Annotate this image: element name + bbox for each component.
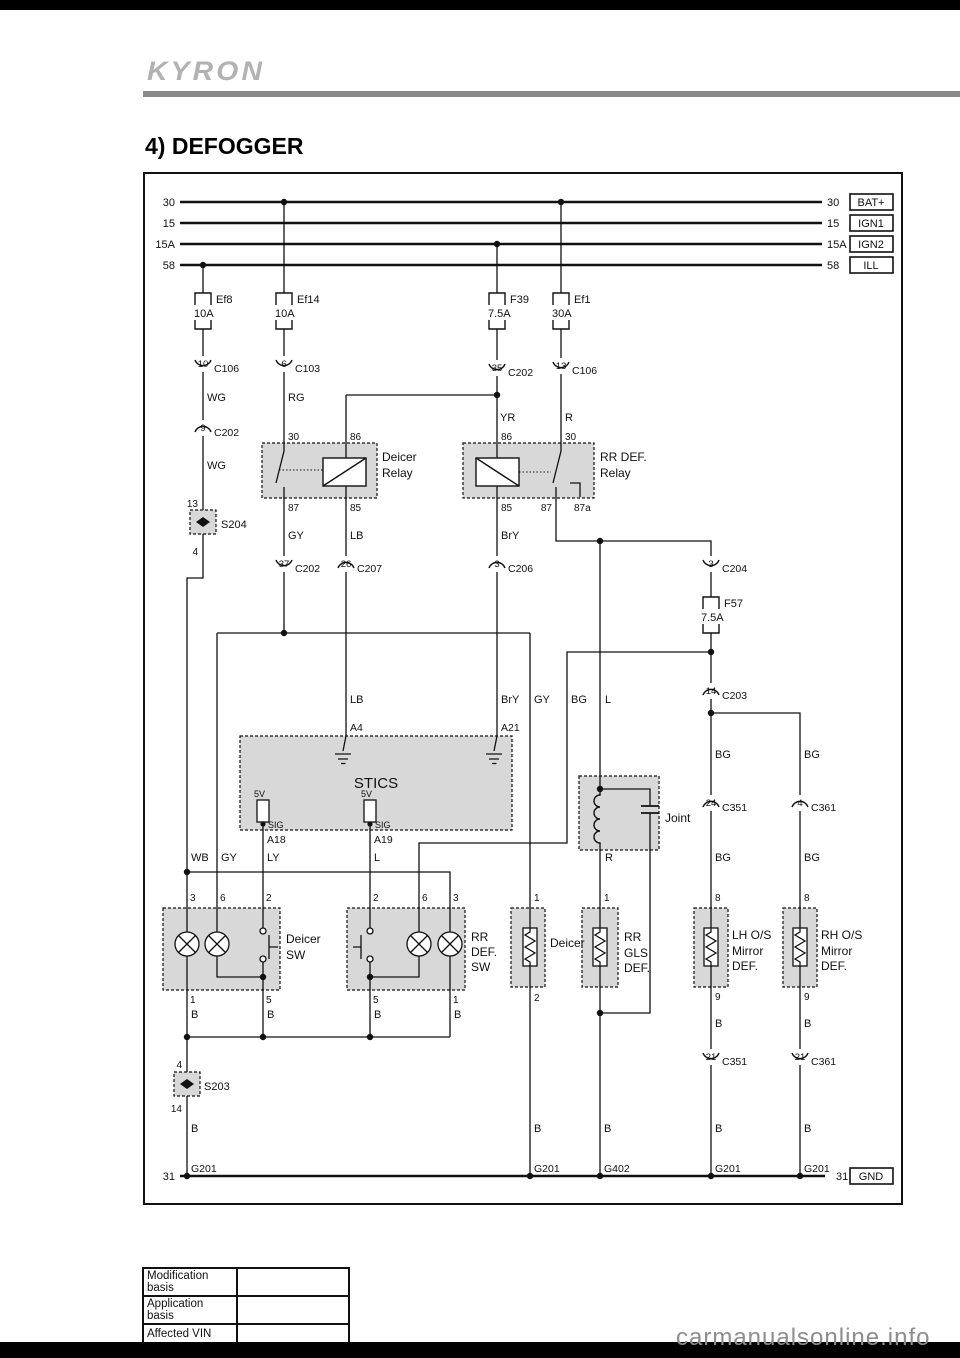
- splice-s203-pin14: 14: [171, 1104, 183, 1115]
- relay-deicer-pin30: 30: [288, 432, 300, 443]
- wire-wg-2: WG: [207, 460, 226, 472]
- wire-wg-1: WG: [207, 392, 226, 404]
- wire-bg-1: BG: [571, 694, 587, 706]
- deicer-el-pin1: 1: [534, 893, 540, 904]
- terminal-gnd: GND: [859, 1171, 884, 1183]
- wire-b-sw1: B: [191, 1009, 198, 1021]
- joint-label: Joint: [665, 811, 691, 825]
- deicersw-pin2: 2: [266, 893, 272, 904]
- bus-58-right: 58: [827, 260, 839, 272]
- conn-c203-pin14: 14: [706, 686, 717, 697]
- deicer-relay-feed-wire: [217, 202, 530, 1176]
- rhmirror-label1: RH O/S: [821, 928, 862, 942]
- splice-s204-pin13: 13: [187, 499, 199, 510]
- relay-rrdef-pin85: 85: [501, 503, 513, 514]
- conn-c106-pin10: 10: [198, 359, 209, 370]
- fuse-ef1-name: Ef1: [574, 294, 591, 306]
- wire-wb: WB: [191, 852, 209, 864]
- rrdefsw-label1: RR: [471, 930, 489, 944]
- wire-l-1: L: [605, 694, 611, 706]
- wire-r-joint: R: [605, 852, 613, 864]
- conn-c361-pin21: 21: [795, 1052, 806, 1063]
- wire-b-rh-1: B: [804, 1018, 811, 1030]
- stics-pin-a4: A4: [350, 722, 363, 734]
- ground-g201-2: G201: [534, 1163, 560, 1175]
- deicersw-pin1: 1: [190, 995, 196, 1006]
- fuse-ef14-amp: 10A: [275, 308, 295, 320]
- deicer-el-label: Deicer: [550, 936, 585, 950]
- conn-c206-pin3: 3: [494, 559, 499, 570]
- bus-30-right: 30: [827, 197, 839, 209]
- wire-gy-3: GY: [221, 852, 238, 864]
- conn-c207-name: C207: [357, 563, 382, 575]
- splice-s203-label: S203: [204, 1081, 230, 1093]
- wire-bg-lh-1: BG: [715, 749, 731, 761]
- table-row: Affected VIN: [143, 1324, 349, 1344]
- terminal-ign2: IGN2: [858, 239, 884, 251]
- conn-c202-pin37: 37: [279, 559, 290, 570]
- relay-rrdef-label2: Relay: [600, 466, 631, 480]
- wire-b-gls: B: [604, 1123, 611, 1135]
- rhmirror-label2: Mirror: [821, 944, 852, 958]
- deicersw-label2: SW: [286, 948, 306, 962]
- conn-c351-pin21: 21: [706, 1052, 717, 1063]
- lhmirror-label3: DEF.: [732, 959, 758, 973]
- ground-g201-3: G201: [715, 1163, 741, 1175]
- page-title: 4) DEFOGGER: [145, 133, 303, 160]
- wire-gy-2: GY: [534, 694, 551, 706]
- conn-c206-name: C206: [508, 563, 533, 575]
- conn-c202-pin35: 35: [492, 363, 503, 374]
- wire-b-left: B: [191, 1123, 198, 1135]
- conn-c106b-name: C106: [572, 365, 597, 377]
- relay-rrdef-pin87a: 87a: [574, 503, 591, 514]
- fuse-f39-amp: 7.5A: [488, 308, 511, 320]
- bus-30-left: 30: [163, 197, 175, 209]
- splice-s203-pin4: 4: [176, 1060, 182, 1071]
- bus-31-right: 31: [836, 1171, 848, 1183]
- conn-c203-name: C203: [722, 690, 747, 702]
- wire-b-sw3: B: [374, 1009, 381, 1021]
- lhmirror-label1: LH O/S: [732, 928, 771, 942]
- diagram-border: [144, 173, 902, 1204]
- wire-rg: RG: [288, 392, 305, 404]
- affected-vin-value: [237, 1324, 349, 1344]
- rrgls-label2: GLS: [624, 946, 648, 960]
- wire-l-2: L: [374, 852, 380, 864]
- ground-g201-1: G201: [191, 1163, 217, 1175]
- fuse-f39-name: F39: [510, 294, 529, 306]
- relay-deicer-pin87: 87: [288, 503, 300, 514]
- rrdefsw-pin1: 1: [453, 995, 459, 1006]
- conn-c106-name: C106: [214, 363, 239, 375]
- rrdefsw-pin2: 2: [373, 893, 379, 904]
- conn-c361-name-low: C361: [811, 1056, 836, 1068]
- conn-c202-name-top: C202: [508, 367, 533, 379]
- terminal-bat: BAT+: [857, 197, 884, 209]
- application-basis-label: Application basis: [143, 1296, 237, 1324]
- conn-c351-name-top: C351: [722, 802, 747, 814]
- fuse-ef8-name: Ef8: [216, 294, 233, 306]
- conn-c202-name-mid: C202: [214, 427, 239, 439]
- rrgls-label3: DEF.: [624, 961, 650, 975]
- stics-sig-1: SIG: [268, 820, 284, 830]
- wire-b-lh-1: B: [715, 1018, 722, 1030]
- bus-31-left: 31: [163, 1171, 175, 1183]
- conn-c202-pin9: 9: [200, 423, 205, 434]
- terminal-ign1: IGN1: [858, 218, 884, 230]
- conn-c207-pin26: 26: [341, 559, 352, 570]
- wire-bry-2: BrY: [501, 694, 520, 706]
- wire-b-lh-2: B: [715, 1123, 722, 1135]
- deicersw-label1: Deicer: [286, 932, 321, 946]
- wire-b-deicer: B: [534, 1123, 541, 1135]
- rrgls-pin1: 1: [604, 893, 610, 904]
- stics-5v-1: 5V: [254, 789, 265, 799]
- rrdefsw-pin3: 3: [453, 893, 459, 904]
- conn-c202-name-low: C202: [295, 563, 320, 575]
- kyron-logo: KYRON: [147, 56, 265, 87]
- splice-s204-label: S204: [221, 519, 247, 531]
- splice-s204-pin4: 4: [192, 547, 198, 558]
- stics-pin-a19: A19: [374, 834, 393, 846]
- conn-c351-name-low: C351: [722, 1056, 747, 1068]
- wire-yr: YR: [500, 412, 515, 424]
- conn-c106-pin13: 13: [556, 361, 567, 372]
- bus-terminal-boxes: [850, 194, 893, 1184]
- bus-58-left: 58: [163, 260, 175, 272]
- fuse-ef1-amp: 30A: [552, 308, 572, 320]
- wire-lb-1: LB: [350, 530, 363, 542]
- stics-pin-a21: A21: [501, 722, 520, 734]
- stics-label: STICS: [354, 775, 398, 792]
- rhmirror-pin9: 9: [804, 992, 810, 1003]
- deicer-el-pin2: 2: [534, 993, 540, 1004]
- header-rule: [143, 91, 960, 97]
- relay-deicer-label1: Deicer: [382, 450, 417, 464]
- bus-15a-right: 15A: [827, 239, 847, 251]
- conn-c361-pin4: 4: [797, 798, 802, 809]
- conn-c103-name: C103: [295, 363, 320, 375]
- relay-rrdef-pin86: 86: [501, 432, 513, 443]
- ground-g402: G402: [604, 1163, 630, 1175]
- terminal-ill: ILL: [863, 260, 878, 272]
- wire-bg-rh-1: BG: [804, 749, 820, 761]
- top-black-bar: [0, 0, 960, 10]
- rrdefsw-pin5: 5: [373, 995, 379, 1006]
- relay-rrdef-label1: RR DEF.: [600, 450, 647, 464]
- application-basis-value: [237, 1296, 349, 1324]
- table-row: Application basis: [143, 1296, 349, 1324]
- bus-15a-left: 15A: [155, 239, 175, 251]
- relay-rrdef-pin30: 30: [565, 432, 577, 443]
- wire-gy-1: GY: [288, 530, 305, 542]
- conn-c103-pin6: 6: [281, 359, 286, 370]
- rhmirror-label3: DEF.: [821, 959, 847, 973]
- lhmirror-pin9: 9: [715, 992, 721, 1003]
- conn-c351-pin24: 24: [706, 798, 717, 809]
- rrdefsw-label2: DEF.: [471, 945, 497, 959]
- relay-coil-icons: [323, 458, 519, 486]
- modification-basis-label: Modification basis: [143, 1268, 237, 1296]
- rrdefsw-pin6: 6: [422, 893, 428, 904]
- relay-deicer-label2: Relay: [382, 466, 413, 480]
- deicersw-pin3: 3: [190, 893, 196, 904]
- fuse-f57-amp: 7.5A: [701, 612, 724, 624]
- wire-r-top: R: [565, 412, 573, 424]
- table-row: Modification basis: [143, 1268, 349, 1296]
- bus-15-right: 15: [827, 218, 839, 230]
- rrdefsw-label3: SW: [471, 960, 491, 974]
- wire-bry-1: BrY: [501, 530, 520, 542]
- relay-deicer-pin85: 85: [350, 503, 362, 514]
- fuse-ef14-name: Ef14: [297, 294, 320, 306]
- rhmirror-pin8: 8: [804, 893, 810, 904]
- wire-ly: LY: [267, 852, 280, 864]
- relay-deicer-pin86: 86: [350, 432, 362, 443]
- wire-b-rh-2: B: [804, 1123, 811, 1135]
- lhmirror-pin8: 8: [715, 893, 721, 904]
- wire-bg-lh-2: BG: [715, 852, 731, 864]
- conn-c361-name-top: C361: [811, 802, 836, 814]
- power-buses: [180, 202, 825, 1176]
- relay-rrdef-pin87: 87: [541, 503, 553, 514]
- lhmirror-label2: Mirror: [732, 944, 763, 958]
- wire-b-sw4: B: [454, 1009, 461, 1021]
- modification-basis-value: [237, 1268, 349, 1296]
- deicersw-pin5: 5: [266, 995, 272, 1006]
- wire-b-sw2: B: [267, 1009, 274, 1021]
- fuse-f57-name: F57: [724, 598, 743, 610]
- wire-lb-2: LB: [350, 694, 363, 706]
- watermark: carmanualsonline.info: [676, 1324, 930, 1352]
- wire-bg-rh-2: BG: [804, 852, 820, 864]
- rrgls-label1: RR: [624, 930, 642, 944]
- revision-table: Modification basis Application basis Aff…: [142, 1267, 350, 1345]
- defogger-wiring-diagram: 301515A58301515A58BAT+IGN1IGN2ILL3131GND…: [143, 172, 903, 1205]
- deicersw-pin6: 6: [220, 893, 226, 904]
- mirror-def-wires: [711, 633, 800, 1176]
- bus-15-left: 15: [163, 218, 175, 230]
- rrdef-relay-feed-wire: [556, 202, 711, 597]
- fuse-ef8-amp: 10A: [194, 308, 214, 320]
- conn-c204-pin3: 3: [708, 559, 713, 570]
- stics-pin-a18: A18: [267, 834, 286, 846]
- stics-sig-2: SIG: [375, 820, 391, 830]
- conn-c204-name: C204: [722, 563, 747, 575]
- ground-g201-4: G201: [804, 1163, 830, 1175]
- affected-vin-label: Affected VIN: [143, 1324, 237, 1344]
